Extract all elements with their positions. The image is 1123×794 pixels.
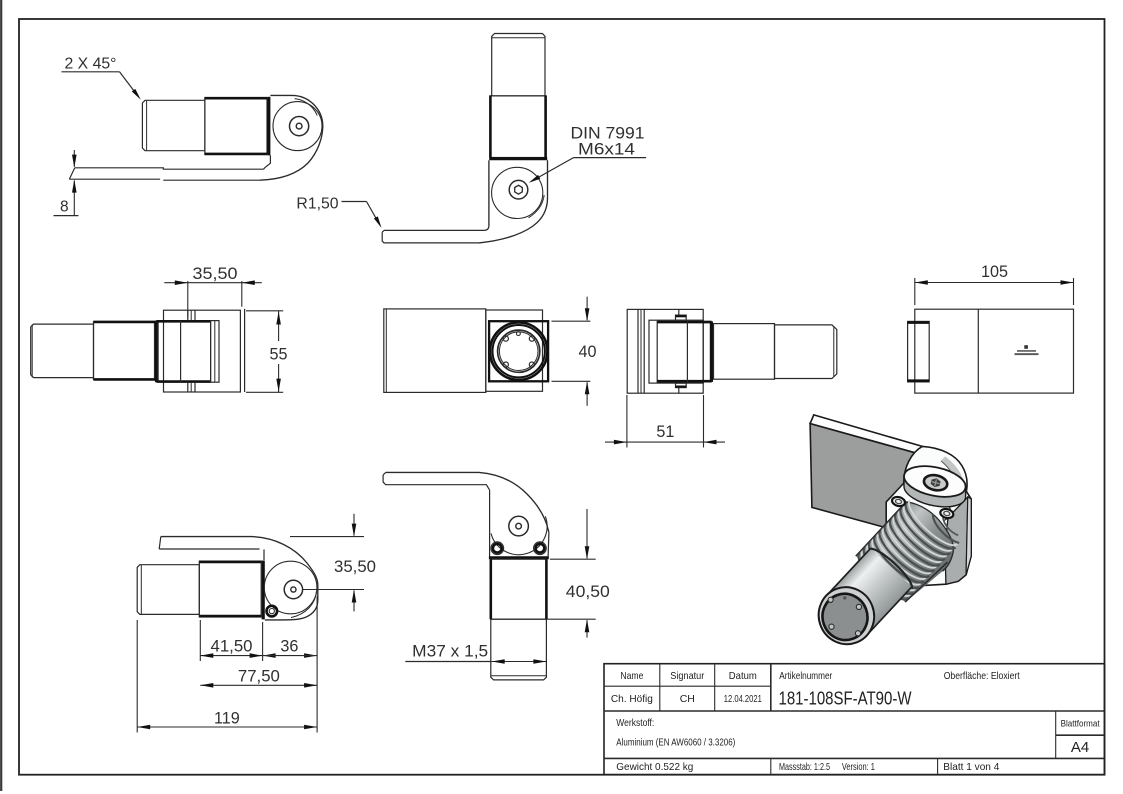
svg-text:Datum: Datum	[729, 670, 757, 682]
svg-text:77,50: 77,50	[238, 668, 280, 686]
svg-text:181-108SF-AT90-W: 181-108SF-AT90-W	[779, 688, 912, 709]
svg-text:Version: 1: Version: 1	[842, 761, 875, 773]
svg-text:Oberfläche: Eloxiert: Oberfläche: Eloxiert	[944, 670, 1020, 682]
svg-text:M6x14: M6x14	[578, 140, 635, 158]
svg-text:Name: Name	[620, 670, 643, 682]
svg-text:R1,50: R1,50	[296, 195, 338, 212]
svg-text:M37 x 1,5: M37 x 1,5	[412, 643, 488, 661]
svg-text:Massstab: 1:2.5: Massstab: 1:2.5	[779, 761, 830, 773]
svg-text:36: 36	[280, 638, 298, 656]
svg-text:55: 55	[269, 346, 287, 364]
svg-text:41,50: 41,50	[211, 638, 253, 656]
svg-text:2 X 45°: 2 X 45°	[65, 56, 117, 73]
svg-text:35,50: 35,50	[193, 265, 238, 283]
svg-text:Artikelnummer: Artikelnummer	[779, 670, 832, 682]
svg-text:CH: CH	[680, 693, 695, 705]
svg-text:40: 40	[578, 343, 596, 361]
svg-text:Aluminium (EN AW6060 / 3.3206): Aluminium (EN AW6060 / 3.3206)	[616, 737, 735, 749]
svg-text:105: 105	[981, 263, 1008, 281]
svg-text:35,50: 35,50	[334, 558, 376, 576]
svg-text:Gewicht 0.522 kg: Gewicht 0.522 kg	[616, 761, 693, 773]
svg-text:8: 8	[60, 199, 69, 216]
svg-text:A4: A4	[1071, 739, 1089, 756]
svg-text:Werkstoff:: Werkstoff:	[616, 717, 654, 729]
svg-text:40,50: 40,50	[566, 583, 610, 601]
svg-text:Blatt 1 von 4: Blatt 1 von 4	[943, 761, 999, 773]
svg-text:Signatur: Signatur	[670, 670, 704, 682]
svg-text:51: 51	[656, 423, 674, 441]
svg-text:Ch. Höfig: Ch. Höfig	[611, 693, 653, 705]
svg-text:12.04.2021: 12.04.2021	[724, 693, 762, 705]
svg-text:Blattformat: Blattformat	[1061, 719, 1100, 730]
svg-text:119: 119	[214, 709, 240, 727]
